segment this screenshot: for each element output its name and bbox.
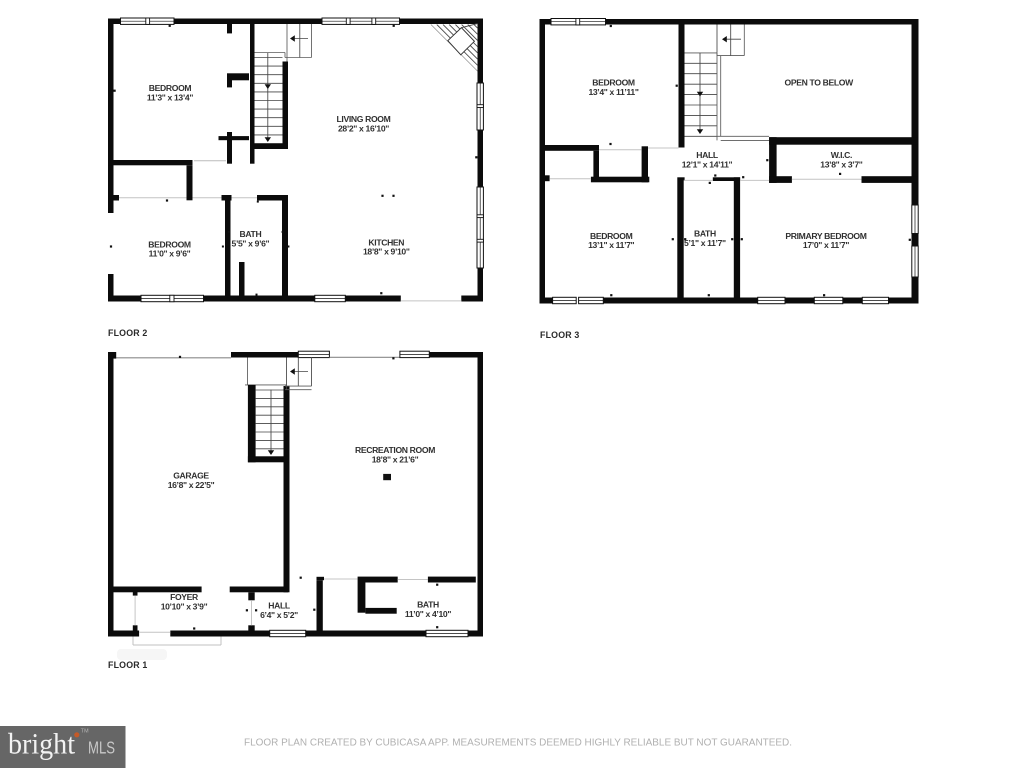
svg-text:13’8" x 3’7": 13’8" x 3’7" [820, 159, 862, 169]
svg-text:28’2" x 16’10": 28’2" x 16’10" [338, 123, 389, 133]
svg-text:FLOOR PLAN CREATED BY CUBICASA: FLOOR PLAN CREATED BY CUBICASA APP. MEAS… [244, 738, 792, 749]
svg-text:FLOOR 2: FLOOR 2 [108, 328, 148, 338]
svg-text:18’8" x 21’6": 18’8" x 21’6" [372, 454, 419, 464]
svg-text:17’0" x 11’7": 17’0" x 11’7" [803, 240, 849, 250]
svg-text:TM: TM [81, 729, 89, 735]
svg-text:5’5" x 9’6": 5’5" x 9’6" [232, 238, 270, 248]
svg-text:11’3" x 13’4": 11’3" x 13’4" [147, 92, 193, 102]
svg-text:FLOOR 3: FLOOR 3 [540, 330, 580, 340]
svg-text:13’1" x 11’7": 13’1" x 11’7" [588, 240, 634, 250]
svg-text:6’4" x 5’2": 6’4" x 5’2" [260, 610, 298, 620]
svg-text:MLS: MLS [88, 738, 115, 758]
svg-text:10’10" x 3’9": 10’10" x 3’9" [161, 601, 208, 611]
svg-text:5’1" x 11’7": 5’1" x 11’7" [684, 238, 726, 248]
svg-text:13’4" x 11’11": 13’4" x 11’11" [588, 87, 638, 97]
svg-text:16’8" x 22’5": 16’8" x 22’5" [168, 480, 215, 490]
svg-text:12’1" x 14’11": 12’1" x 14’11" [682, 159, 733, 169]
svg-text:bright: bright [8, 728, 76, 761]
svg-text:11’0" x 9’6": 11’0" x 9’6" [149, 249, 191, 259]
svg-text:18’8" x 9’10": 18’8" x 9’10" [363, 247, 410, 257]
svg-text:11’0" x 4’10": 11’0" x 4’10" [405, 609, 451, 619]
svg-text:FLOOR 1: FLOOR 1 [108, 660, 148, 670]
svg-text:OPEN TO BELOW: OPEN TO BELOW [785, 77, 855, 87]
